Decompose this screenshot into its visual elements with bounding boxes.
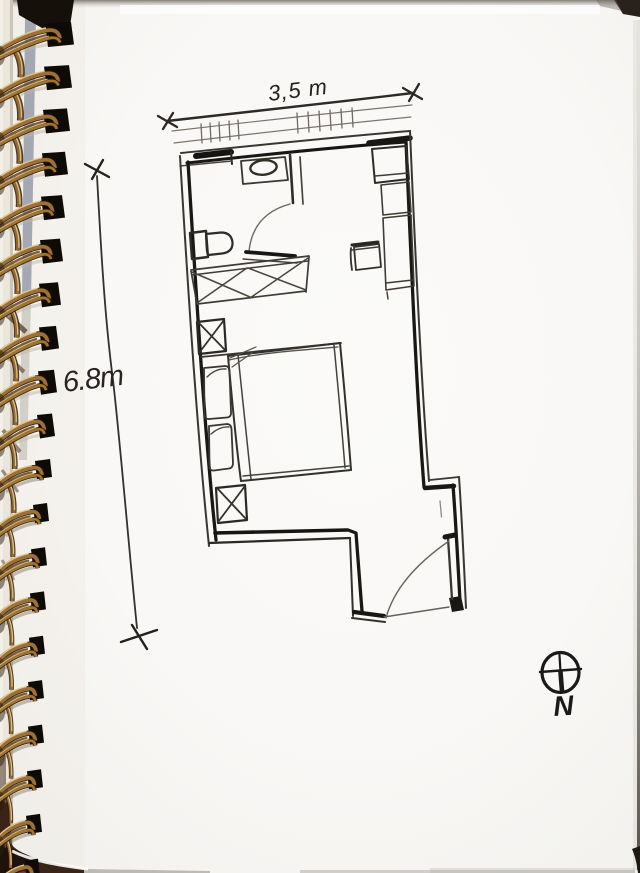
svg-text:N: N bbox=[552, 690, 575, 722]
